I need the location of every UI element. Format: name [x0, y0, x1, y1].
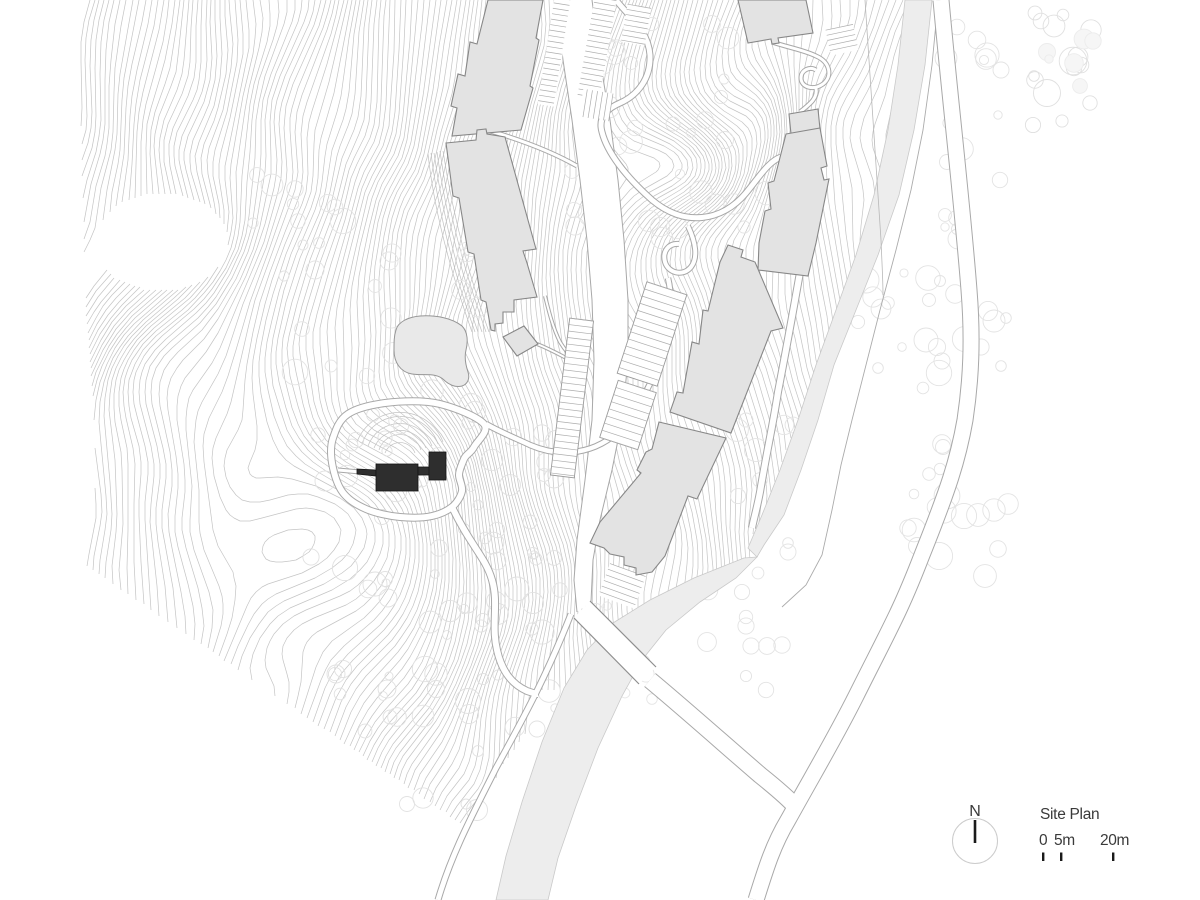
svg-text:Site Plan: Site Plan [1040, 806, 1099, 823]
svg-text:N: N [969, 803, 981, 820]
svg-text:5m: 5m [1054, 832, 1075, 849]
svg-text:20m: 20m [1100, 832, 1129, 849]
svg-text:0: 0 [1039, 832, 1048, 849]
